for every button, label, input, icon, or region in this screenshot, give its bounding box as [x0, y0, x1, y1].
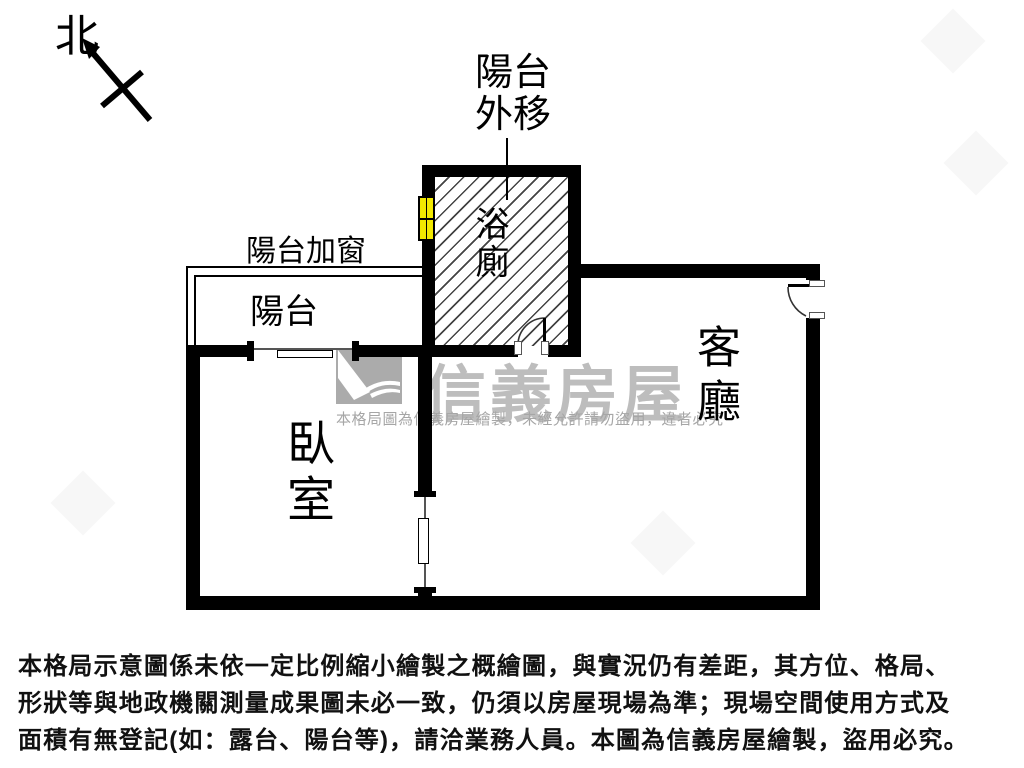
window-post: [352, 341, 359, 361]
annotation-leader-line: [506, 138, 508, 200]
room-label-bedroom: 臥室: [270, 418, 340, 530]
wall-bath-left: [422, 165, 435, 357]
window-post: [247, 341, 254, 361]
door-jamb: [414, 587, 436, 593]
wall-bath-right: [568, 165, 581, 357]
wall-bedroom-top-left: [186, 345, 250, 357]
disclaimer-line-3: 面積有無登記(如：露台、陽台等)，請洽業務人員。本圖為信義房屋繪製，盜用必究。: [18, 720, 1018, 755]
room-label-living-room: 客廳: [682, 324, 746, 432]
sinyi-notice-watermark: 本格局圖為信義房屋繪製，未經允許請勿盜用，違者必究: [336, 408, 716, 429]
room-label-balcony: 陽台: [250, 284, 318, 333]
sliding-window-pane: [277, 350, 333, 358]
sliding-door-pane: [418, 518, 429, 564]
wall-bedroom-right-stub: [418, 593, 432, 603]
bathroom-door-hinge: [514, 341, 522, 355]
bathroom-door-hinge: [541, 341, 549, 355]
wall-left: [186, 345, 200, 610]
wall-bedroom-right-upper: [418, 345, 432, 491]
room-label-bathroom: 浴廁: [464, 206, 513, 282]
balcony-out-annotation: 陽台 外移: [440, 52, 586, 136]
wall-right-lower: [806, 318, 820, 610]
balcony-frame-outer-left: [186, 266, 188, 346]
faint-watermark-icon: [630, 510, 695, 575]
door-jamb: [414, 491, 436, 497]
disclaimer-line-2: 形狀等與地政機關測量成果圖未必一致，仍須以房屋現場為準；現場空間使用方式及: [18, 683, 1018, 718]
entry-door-hinge: [809, 312, 825, 319]
balcony-frame-inner-left: [194, 275, 196, 346]
floor-plan-page: 北 陽台 外移 陽台加窗 信義房屋 本格局圖為信義房屋繪製，未經允許請勿盜用，違…: [0, 0, 1024, 768]
balcony-frame-inner-top: [194, 275, 424, 277]
faint-watermark-icon: [943, 130, 1008, 195]
wall-living-top: [568, 264, 820, 278]
yellow-window-icon: [418, 196, 435, 241]
balcony-window-annotation: 陽台加窗: [246, 226, 366, 270]
faint-watermark-icon: [50, 470, 115, 535]
wall-bath-bottom-left: [422, 345, 518, 357]
entry-door-hinge: [809, 280, 825, 287]
north-arrow: 北: [40, 0, 210, 140]
wall-bottom: [186, 596, 820, 610]
wall-bath-top: [422, 165, 581, 177]
faint-watermark-icon: [920, 8, 985, 73]
disclaimer-line-1: 本格局示意圖係未依一定比例縮小繪製之概繪圖，與實況仍有差距，其方位、格局、: [18, 646, 1018, 681]
wall-bath-bottom-right: [548, 345, 581, 357]
north-arrow-icon: [40, 28, 170, 138]
